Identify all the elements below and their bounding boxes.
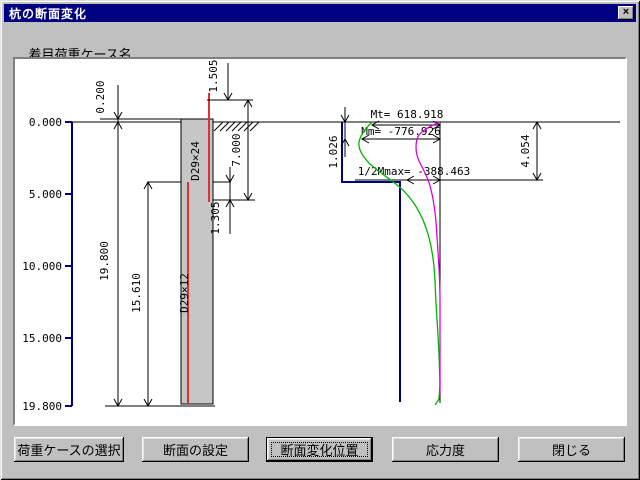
rebar-label-lower: D29×12 [178,273,191,313]
title-bar: 杭の断面変化 × [4,4,636,22]
dim-head-offset-label: 0.200 [94,80,107,113]
dim-half-mmax-depth-label: 4.054 [519,134,532,167]
moment-curve-magenta [416,122,440,393]
dim-upper-span-label: 7.000 [230,133,243,166]
dim-top-height-label: 1.505 [207,59,220,92]
depth-tick-label: 0.000 [29,116,62,129]
close-icon: × [623,6,629,18]
moment-diagram: 1.026 Mt= 618.918 Mm= -776.926 1/2Mmax= … [327,107,543,405]
stress-button[interactable]: 応力度 [392,437,499,462]
close-button[interactable]: × [618,6,634,20]
section-settings-button[interactable]: 断面の設定 [142,437,249,462]
rebar-label-upper: D29×24 [189,141,202,181]
dim-pile-length: 0.200 19.800 [94,80,122,406]
dialog-window: 杭の断面変化 × 着目荷重ケース名 橋軸方向 地震時(R) 0.000 5.00… [0,0,640,480]
stiffness-step-line [342,122,400,402]
dim-lower-length: 15.610 [130,182,152,406]
close-dialog-button[interactable]: 閉じる [518,437,625,462]
depth-tick-label: 5.000 [29,188,62,201]
depth-tick-label: 19.800 [22,400,62,413]
dim-top-height: 1.505 [207,59,253,100]
window-title: 杭の断面変化 [4,5,87,22]
pile-section-drawing: 0.000 5.000 10.000 15.000 19.800 [15,59,625,424]
select-load-case-button[interactable]: 荷重ケースの選択 [14,437,124,462]
moment-mt-label: Mt= 618.918 [371,108,444,121]
depth-tick-label: 10.000 [22,260,62,273]
dim-upper-span: 7.000 [230,100,252,200]
dim-mid-span-label: 1.305 [209,201,222,234]
drawing-area: 0.000 5.000 10.000 15.000 19.800 [13,57,627,426]
dim-pile-length-label: 19.800 [98,241,111,281]
depth-axis: 0.000 5.000 10.000 15.000 19.800 [22,116,72,413]
ground-hatch [214,122,259,131]
depth-tick-label: 15.000 [22,332,62,345]
section-change-position-button[interactable]: 断面変化位置 [266,437,373,462]
dim-mm-depth-label: 1.026 [327,135,340,168]
dim-lower-length-label: 15.610 [130,273,143,313]
